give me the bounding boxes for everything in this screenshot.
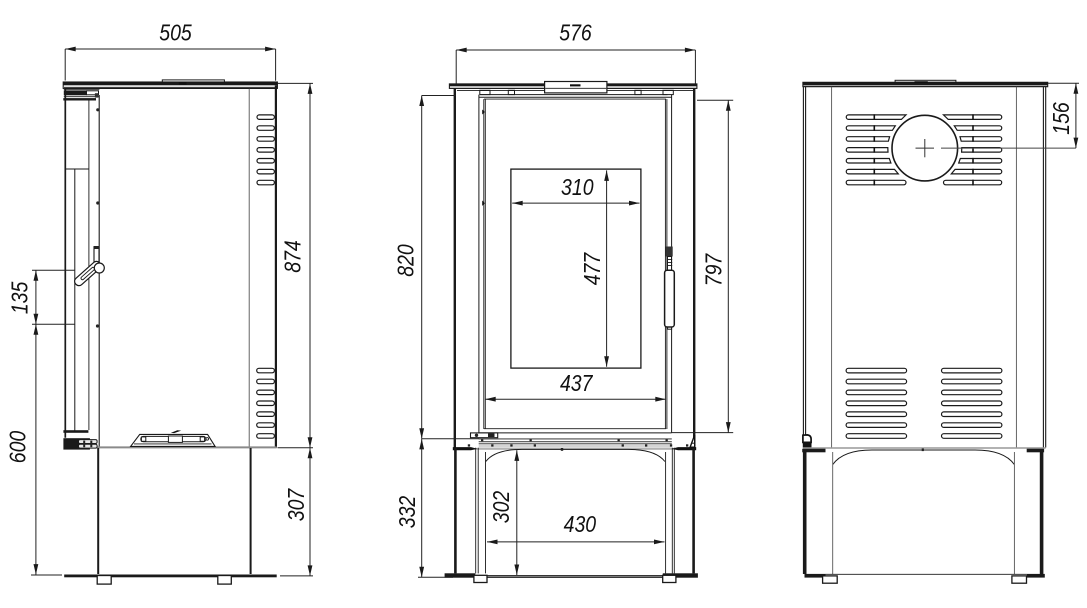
- svg-text:797: 797: [701, 253, 727, 286]
- svg-text:820: 820: [393, 244, 419, 277]
- svg-text:135: 135: [6, 281, 32, 314]
- svg-text:307: 307: [283, 488, 309, 521]
- svg-text:437: 437: [560, 370, 593, 396]
- svg-text:576: 576: [559, 20, 592, 46]
- svg-text:310: 310: [561, 174, 594, 200]
- svg-text:156: 156: [1048, 101, 1074, 134]
- svg-text:874: 874: [280, 240, 306, 273]
- svg-text:505: 505: [159, 20, 192, 46]
- svg-text:430: 430: [564, 511, 597, 537]
- svg-text:600: 600: [5, 431, 31, 464]
- svg-text:477: 477: [579, 252, 605, 285]
- svg-text:332: 332: [394, 496, 420, 529]
- svg-text:302: 302: [488, 491, 514, 524]
